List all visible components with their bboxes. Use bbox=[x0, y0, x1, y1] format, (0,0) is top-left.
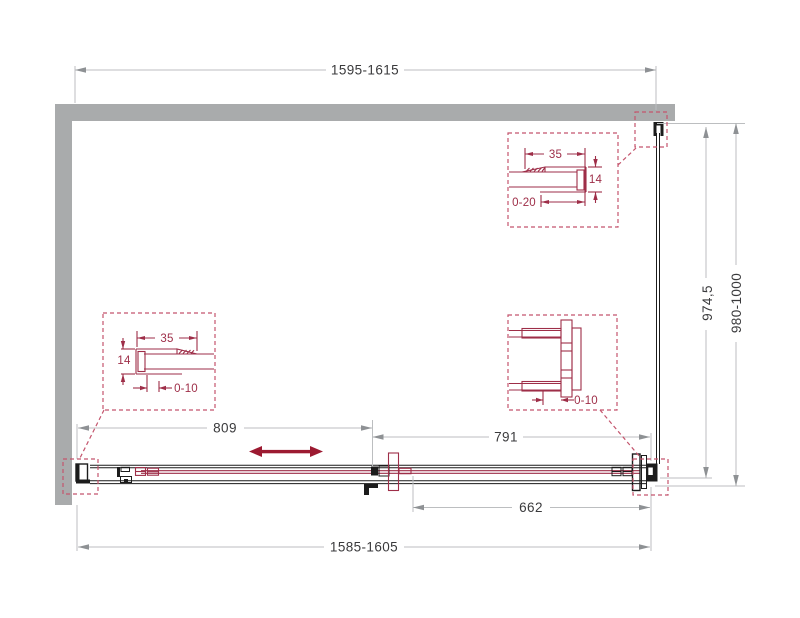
top-width-dimension: 1595-1615 bbox=[75, 63, 656, 111]
fixed-panel-dimension: 662 bbox=[413, 476, 650, 515]
detail-callout-top-right: 35 14 0-20 bbox=[508, 133, 618, 227]
door-track-assembly bbox=[76, 453, 658, 495]
wall bbox=[55, 104, 675, 505]
detail-ml-adjust-label: 0-10 bbox=[174, 383, 198, 395]
callout-boxes bbox=[63, 112, 668, 495]
door-opening-left-dimension: 809 bbox=[77, 420, 373, 466]
slide-direction-arrow-icon bbox=[249, 446, 323, 457]
door-opening-right-dimension: 791 bbox=[373, 430, 652, 462]
detail-ml-height-label: 14 bbox=[117, 355, 131, 367]
dim-total-height-label: 980-1000 bbox=[729, 273, 744, 333]
dim-fixed-panel-label: 662 bbox=[519, 500, 543, 515]
left-rollers-icon bbox=[136, 468, 159, 476]
left-wall-profile-icon bbox=[76, 464, 90, 484]
left-bracket-icon bbox=[117, 467, 132, 483]
dim-door-right-label: 791 bbox=[494, 430, 518, 445]
leader-bottom-right bbox=[600, 410, 640, 457]
detail-tr-width-label: 35 bbox=[549, 149, 562, 161]
detail-ml-width-label: 35 bbox=[160, 333, 173, 345]
dim-glass-height-label: 974,5 bbox=[700, 285, 715, 321]
side-panel-glass bbox=[654, 122, 664, 464]
detail-mr-adjust-label: 0-10 bbox=[574, 395, 598, 407]
height-dimensions: 974,5 980-1000 bbox=[655, 123, 745, 486]
detail-callout-middle-right: 0-10 bbox=[508, 315, 617, 410]
detail-callout-middle-left: 35 14 0-10 bbox=[103, 313, 215, 410]
center-mechanism-icon bbox=[364, 453, 411, 495]
leader-top-right bbox=[618, 148, 636, 165]
dim-bottom-width-label: 1585-1605 bbox=[330, 540, 398, 555]
drawing-canvas: 1595-1615 1585-1605 662 809 791 bbox=[0, 0, 800, 618]
leader-bottom-left bbox=[80, 410, 104, 458]
wall-bracket-top-icon bbox=[654, 122, 664, 136]
sliding-door-glass bbox=[141, 471, 640, 474]
technical-drawing-page: 1595-1615 1585-1605 662 809 791 bbox=[0, 0, 800, 618]
detail-tr-adjust-label: 0-20 bbox=[512, 197, 536, 209]
bottom-width-dimension: 1585-1605 bbox=[77, 487, 651, 555]
dim-door-left-label: 809 bbox=[213, 421, 237, 436]
dim-top-width-label: 1595-1615 bbox=[331, 63, 399, 78]
detail-tr-height-label: 14 bbox=[589, 174, 603, 186]
